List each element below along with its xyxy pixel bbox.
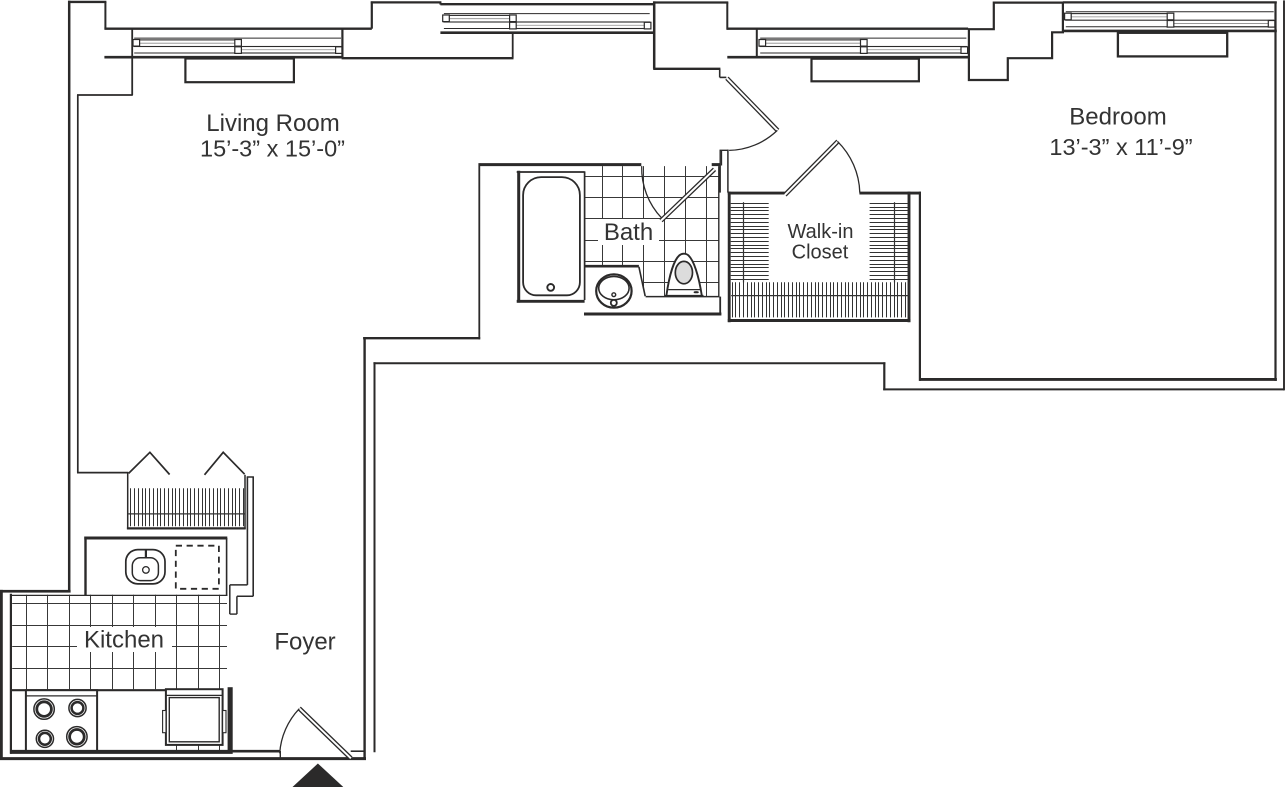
svg-text:Living Room: Living Room bbox=[206, 110, 339, 137]
svg-text:Bedroom: Bedroom bbox=[1069, 104, 1166, 131]
svg-text:Walk-in: Walk-in bbox=[788, 221, 854, 243]
svg-text:15’-3” x 15’-0”: 15’-3” x 15’-0” bbox=[200, 136, 345, 162]
svg-text:13’-3” x 11’-9”: 13’-3” x 11’-9” bbox=[1049, 134, 1192, 160]
svg-text:Kitchen: Kitchen bbox=[84, 627, 164, 654]
svg-text:Bath: Bath bbox=[604, 219, 653, 246]
svg-text:Foyer: Foyer bbox=[274, 629, 335, 656]
svg-text:Closet: Closet bbox=[792, 242, 849, 264]
